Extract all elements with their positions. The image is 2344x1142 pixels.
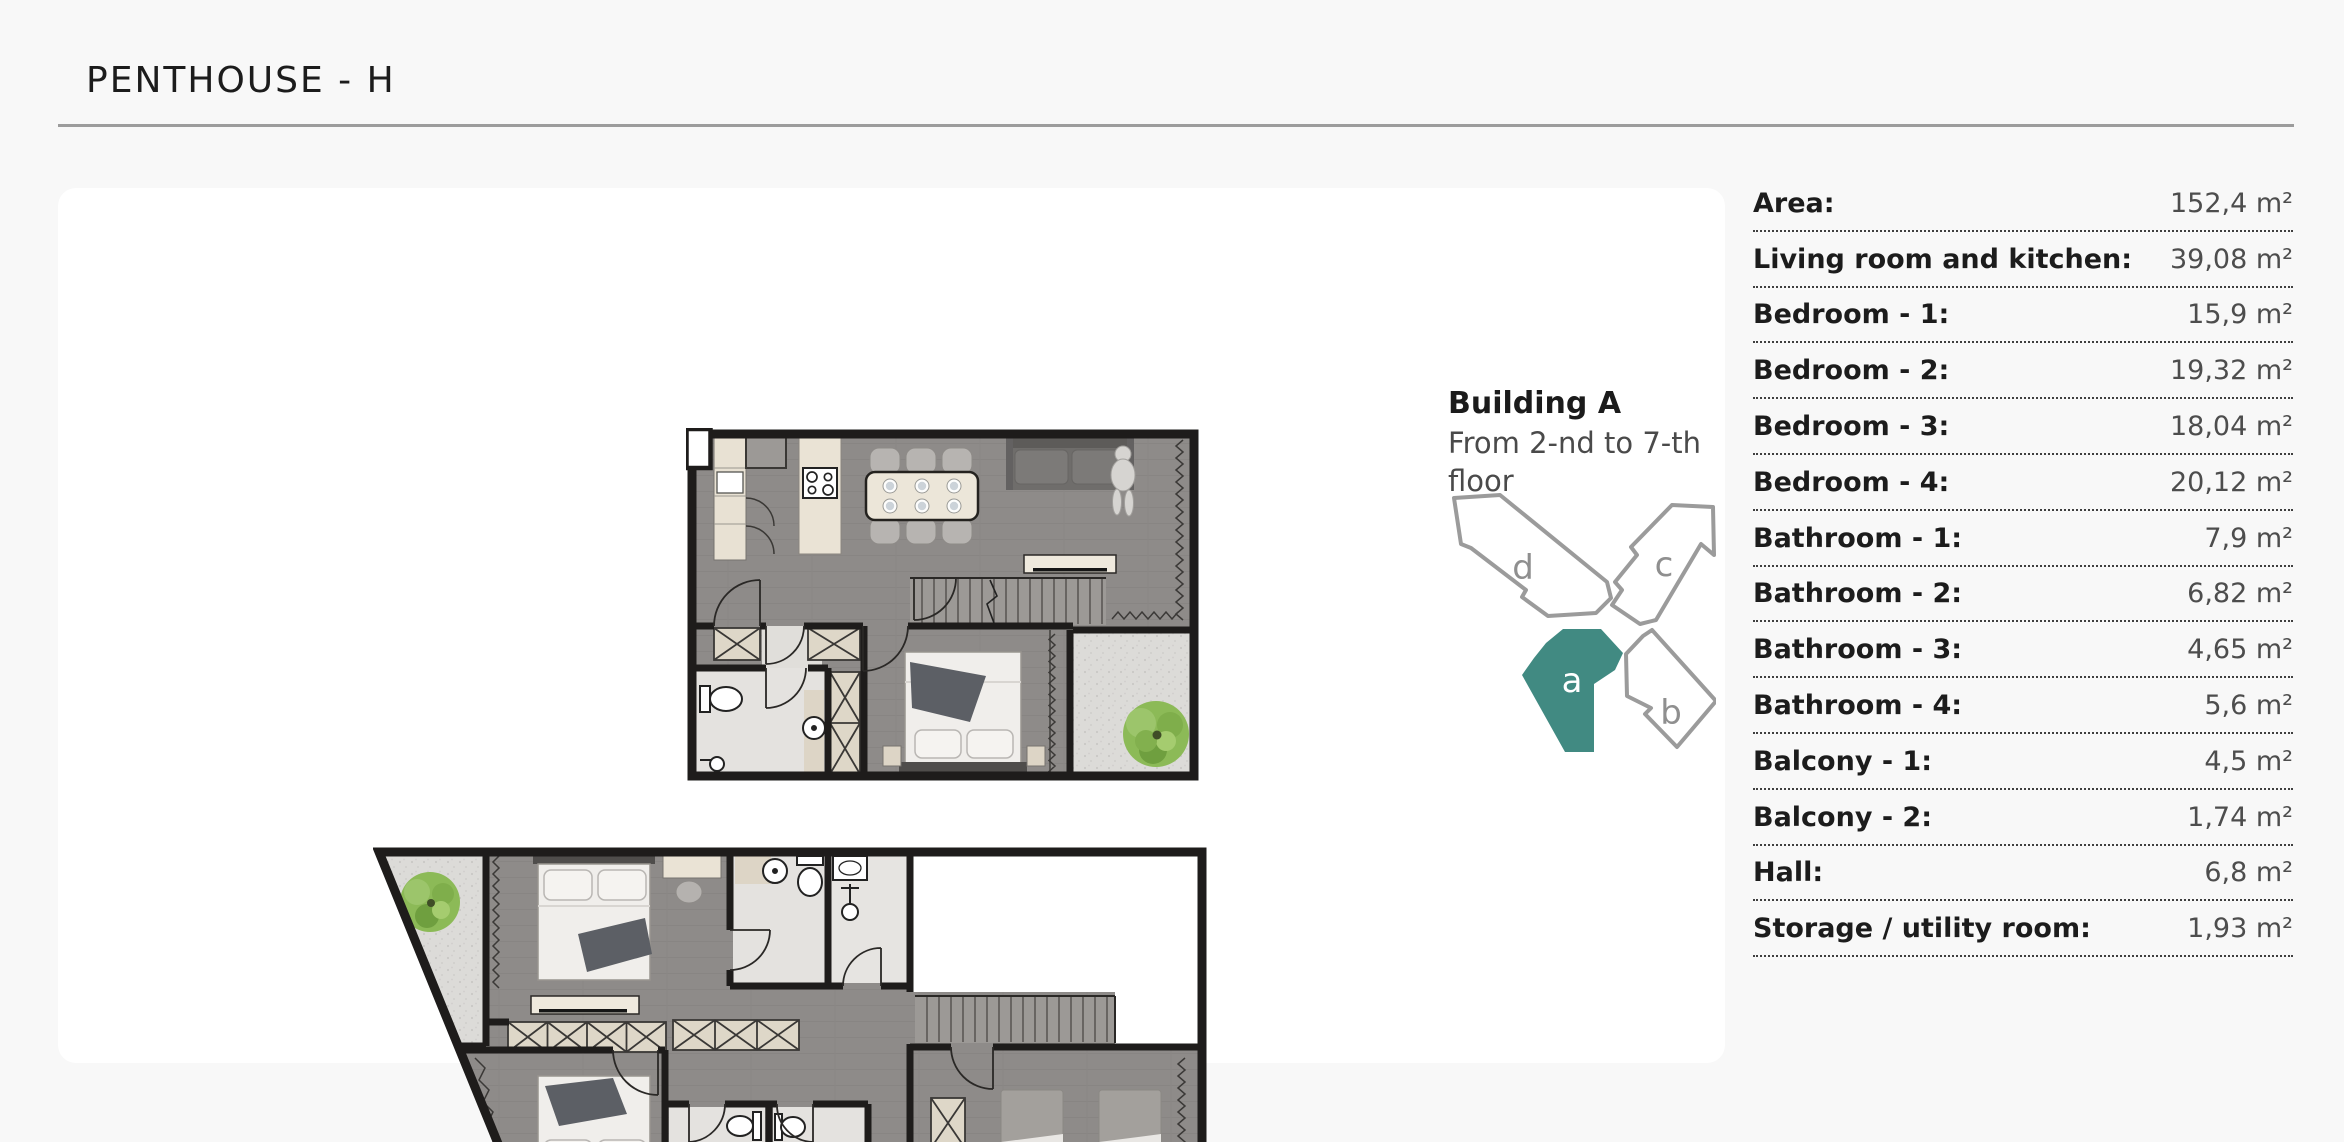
row-label: Bathroom - 1: bbox=[1753, 523, 1962, 554]
row-label: Bedroom - 2: bbox=[1753, 355, 1949, 386]
table-row: Area:152,4 m² bbox=[1753, 176, 2293, 232]
row-value: 6,8 m² bbox=[2204, 857, 2293, 888]
table-row: Bathroom - 4:5,6 m² bbox=[1753, 678, 2293, 734]
row-label: Area: bbox=[1753, 188, 1835, 219]
plant-upper bbox=[1123, 701, 1189, 767]
row-value: 18,04 m² bbox=[2170, 411, 2293, 442]
kitchen-island bbox=[799, 434, 841, 554]
bed-top bbox=[533, 852, 655, 980]
floor-plan-upper bbox=[686, 428, 1201, 782]
table-row: Bathroom - 3:4,65 m² bbox=[1753, 622, 2293, 678]
row-value: 20,12 m² bbox=[2170, 467, 2293, 498]
table-row: Hall:6,8 m² bbox=[1753, 846, 2293, 902]
stairs-lower bbox=[915, 996, 1115, 1043]
floor-plan-lower bbox=[373, 846, 1208, 1142]
row-value: 4,65 m² bbox=[2187, 634, 2293, 665]
area-table: Area:152,4 m² Living room and kitchen:39… bbox=[1753, 176, 2293, 957]
bed-upper bbox=[883, 652, 1045, 775]
table-row: Storage / utility room:1,93 m² bbox=[1753, 901, 2293, 957]
table-row: Bedroom - 3:18,04 m² bbox=[1753, 399, 2293, 455]
stairs-upper bbox=[910, 578, 1106, 625]
table-row: Balcony - 2:1,74 m² bbox=[1753, 790, 2293, 846]
row-value: 6,82 m² bbox=[2187, 578, 2293, 609]
header-divider bbox=[58, 124, 2294, 127]
row-label: Bathroom - 2: bbox=[1753, 578, 1962, 609]
table-row: Bedroom - 1:15,9 m² bbox=[1753, 288, 2293, 344]
table-row: Bedroom - 4:20,12 m² bbox=[1753, 455, 2293, 511]
row-value: 152,4 m² bbox=[2170, 188, 2293, 219]
dining-set bbox=[866, 448, 978, 544]
row-value: 1,74 m² bbox=[2187, 802, 2293, 833]
row-value: 15,9 m² bbox=[2187, 299, 2293, 330]
row-value: 7,9 m² bbox=[2204, 523, 2293, 554]
tv-console bbox=[1024, 555, 1116, 573]
row-label: Balcony - 2: bbox=[1753, 802, 1932, 833]
row-value: 5,6 m² bbox=[2204, 690, 2293, 721]
table-row: Bathroom - 2:6,82 m² bbox=[1753, 567, 2293, 623]
row-label: Storage / utility room: bbox=[1753, 913, 2091, 944]
table-row: Bathroom - 1:7,9 m² bbox=[1753, 511, 2293, 567]
unit-b-label: b bbox=[1660, 693, 1682, 733]
table-row: Balcony - 1:4,5 m² bbox=[1753, 734, 2293, 790]
tv-console-lower bbox=[531, 996, 639, 1014]
row-value: 39,08 m² bbox=[2170, 244, 2293, 275]
row-value: 19,32 m² bbox=[2170, 355, 2293, 386]
unit-d-label: d bbox=[1512, 548, 1534, 588]
row-label: Bathroom - 4: bbox=[1753, 690, 1962, 721]
row-label: Hall: bbox=[1753, 857, 1823, 888]
row-label: Living room and kitchen: bbox=[1753, 244, 2132, 275]
building-info: Building A From 2-nd to 7-th floor bbox=[1448, 384, 1725, 500]
building-unit-map: d c a b bbox=[1444, 484, 1716, 756]
row-label: Bedroom - 4: bbox=[1753, 467, 1949, 498]
page-title: PENTHOUSE - H bbox=[86, 60, 396, 101]
row-label: Bedroom - 3: bbox=[1753, 411, 1949, 442]
row-value: 4,5 m² bbox=[2204, 746, 2293, 777]
row-label: Balcony - 1: bbox=[1753, 746, 1932, 777]
row-value: 1,93 m² bbox=[2187, 913, 2293, 944]
table-row: Bedroom - 2:19,32 m² bbox=[1753, 343, 2293, 399]
floorplan-card: Building A From 2-nd to 7-th floor d c a… bbox=[58, 188, 1725, 1063]
unit-a-label: a bbox=[1562, 661, 1583, 701]
unit-c-label: c bbox=[1655, 545, 1674, 585]
row-label: Bathroom - 3: bbox=[1753, 634, 1962, 665]
table-row: Living room and kitchen:39,08 m² bbox=[1753, 232, 2293, 288]
penthouse-page: PENTHOUSE - H bbox=[0, 0, 2344, 1142]
building-name: Building A bbox=[1448, 384, 1725, 424]
row-label: Bedroom - 1: bbox=[1753, 299, 1949, 330]
